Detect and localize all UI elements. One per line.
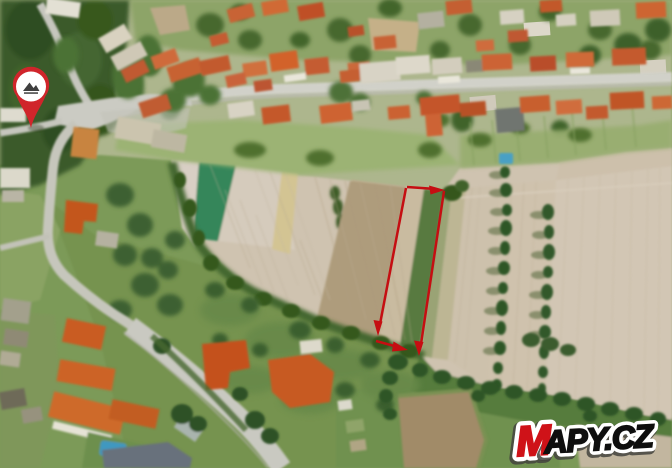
svg-text:APY.CZ: APY.CZ <box>542 418 656 461</box>
